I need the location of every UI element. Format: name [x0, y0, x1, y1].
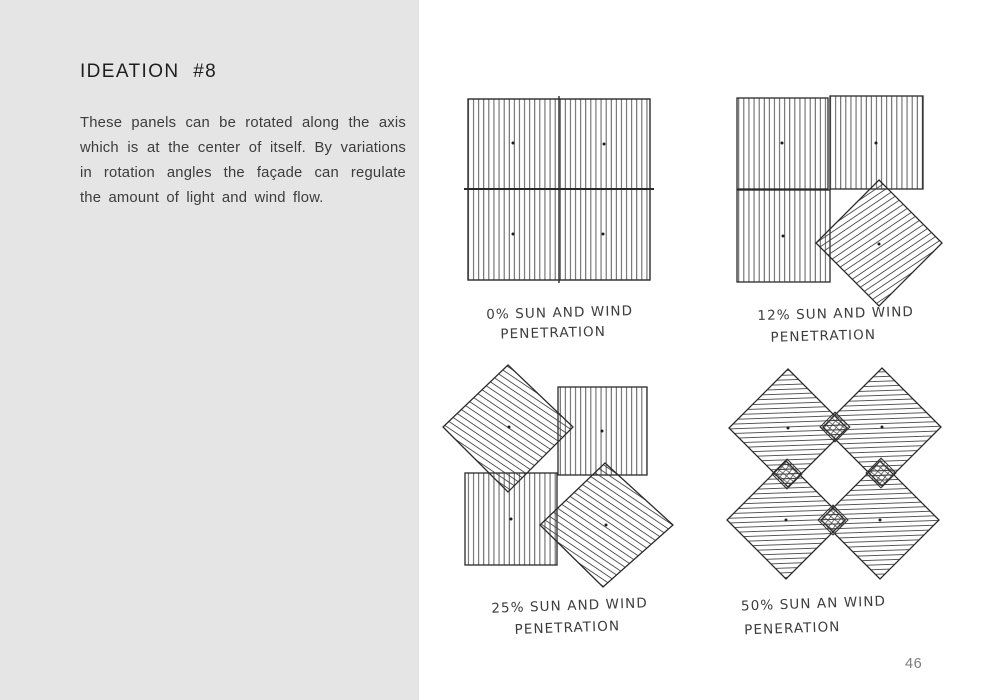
- pivot-dot: [512, 233, 515, 236]
- left-gray-panel: IDEATION #8 These panels can be rotated …: [0, 0, 419, 700]
- pivot-dot: [875, 142, 878, 145]
- sketch-0-percent: 0% SUN AND WIND PENETRATION: [464, 96, 654, 343]
- sketch-25-percent: 25% SUN AND WIND PENETRATION: [443, 365, 673, 639]
- pivot-dot: [881, 426, 884, 429]
- sketch-caption-line1: 12% SUN AND WIND: [757, 304, 914, 324]
- pivot-dot: [508, 426, 511, 429]
- pivot-dot: [601, 430, 604, 433]
- pivot-dot: [510, 518, 513, 521]
- pivot-dot: [602, 233, 605, 236]
- pivot-dot: [787, 427, 790, 430]
- sketch-12-percent: 12% SUN AND WIND PENETRATION: [737, 96, 942, 346]
- pivot-dot: [605, 524, 608, 527]
- pivot-dot: [512, 142, 515, 145]
- pivot-dot: [782, 235, 785, 238]
- sketch-caption-line2: PENETRATION: [514, 618, 620, 638]
- pivot-dot: [878, 243, 881, 246]
- sketch-caption-line2: PENERATION: [744, 619, 841, 638]
- pivot-dot: [785, 519, 788, 522]
- sketch-caption-line1: 0% SUN AND WIND: [486, 303, 633, 323]
- page-number: 46: [905, 656, 922, 672]
- sketch-50-percent: 50% SUN AN WIND PENERATION: [727, 368, 941, 638]
- pivot-dot: [603, 143, 606, 146]
- sketches-canvas: 0% SUN AND WIND PENETRATION 12% SUN AND …: [420, 0, 1000, 700]
- sketch-caption-line1: 50% SUN AN WIND: [741, 593, 887, 614]
- sketch-caption-line1: 25% SUN AND WIND: [491, 595, 648, 616]
- pivot-dot: [781, 142, 784, 145]
- pivot-dot: [879, 519, 882, 522]
- page-title: IDEATION #8: [80, 61, 217, 83]
- description-paragraph: These panels can be rotated along the ax…: [80, 111, 406, 211]
- sketch-caption-line2: PENETRATION: [500, 324, 606, 343]
- sketch-caption-line2: PENETRATION: [770, 327, 876, 346]
